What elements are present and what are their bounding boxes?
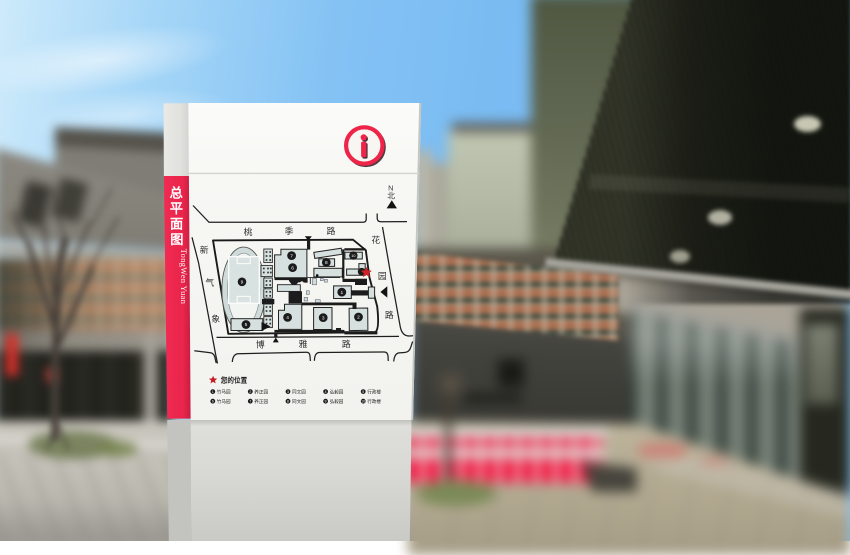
svg-text:竹马园: 竹马园 xyxy=(217,388,231,395)
svg-text:TongWen Yuan: TongWen Yuan xyxy=(179,249,188,304)
svg-text:2: 2 xyxy=(249,390,251,394)
svg-text:新: 新 xyxy=(200,244,209,255)
svg-text:路: 路 xyxy=(342,338,351,349)
svg-text:弘毅园: 弘毅园 xyxy=(330,388,344,395)
svg-text:养正园: 养正园 xyxy=(254,388,268,395)
svg-text:3: 3 xyxy=(322,315,325,321)
svg-text:同文园: 同文园 xyxy=(292,388,306,395)
svg-text:总: 总 xyxy=(170,184,183,200)
svg-text:6: 6 xyxy=(291,265,294,271)
svg-text:面: 面 xyxy=(170,216,183,231)
svg-text:弘毅园: 弘毅园 xyxy=(330,398,344,405)
svg-text:您的位置: 您的位置 xyxy=(221,375,248,384)
svg-text:1: 1 xyxy=(340,290,343,296)
svg-text:象: 象 xyxy=(211,313,220,324)
svg-text:花: 花 xyxy=(371,234,380,245)
svg-text:博: 博 xyxy=(256,339,265,350)
svg-text:园: 园 xyxy=(378,271,387,281)
svg-text:8: 8 xyxy=(287,400,289,404)
svg-text:路: 路 xyxy=(385,309,394,320)
svg-text:10: 10 xyxy=(361,400,365,404)
svg-text:10: 10 xyxy=(351,254,355,258)
svg-text:养正园: 养正园 xyxy=(254,398,268,405)
svg-text:5: 5 xyxy=(362,390,364,394)
svg-text:7: 7 xyxy=(249,400,251,404)
svg-text:雅: 雅 xyxy=(299,338,308,349)
svg-text:北: 北 xyxy=(387,192,395,201)
svg-text:2: 2 xyxy=(357,315,360,321)
svg-text:行政楼: 行政楼 xyxy=(367,388,381,395)
svg-text:9: 9 xyxy=(325,400,327,404)
svg-text:1: 1 xyxy=(212,390,214,394)
svg-text:桃: 桃 xyxy=(244,226,253,237)
svg-text:7: 7 xyxy=(290,253,293,259)
svg-text:4: 4 xyxy=(325,390,327,394)
svg-text:图: 图 xyxy=(170,232,183,247)
svg-text:季: 季 xyxy=(285,225,294,236)
svg-text:平: 平 xyxy=(170,201,183,216)
svg-text:路: 路 xyxy=(327,225,336,236)
svg-text:4: 4 xyxy=(286,315,289,321)
svg-text:9: 9 xyxy=(241,280,244,286)
svg-text:行政楼: 行政楼 xyxy=(367,398,381,405)
svg-text:竹马园: 竹马园 xyxy=(217,398,231,405)
svg-text:同文园: 同文园 xyxy=(292,398,306,405)
svg-text:气: 气 xyxy=(205,276,214,287)
svg-text:5: 5 xyxy=(245,322,248,328)
svg-text:3: 3 xyxy=(287,390,289,394)
svg-text:8: 8 xyxy=(325,260,328,266)
svg-text:6: 6 xyxy=(212,400,214,404)
